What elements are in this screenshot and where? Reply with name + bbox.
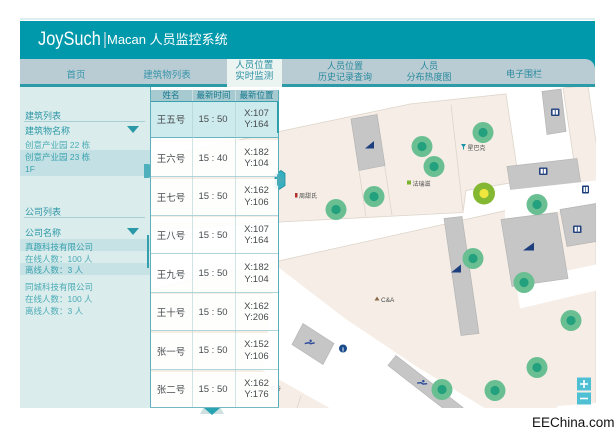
svg-text:i: i: [342, 346, 344, 353]
svg-text:C&A: C&A: [381, 297, 395, 304]
svg-text:法瑞滋: 法瑞滋: [413, 180, 431, 188]
svg-text:周甜氏: 周甜氏: [299, 192, 317, 200]
svg-text:星巴克: 星巴克: [468, 144, 486, 152]
